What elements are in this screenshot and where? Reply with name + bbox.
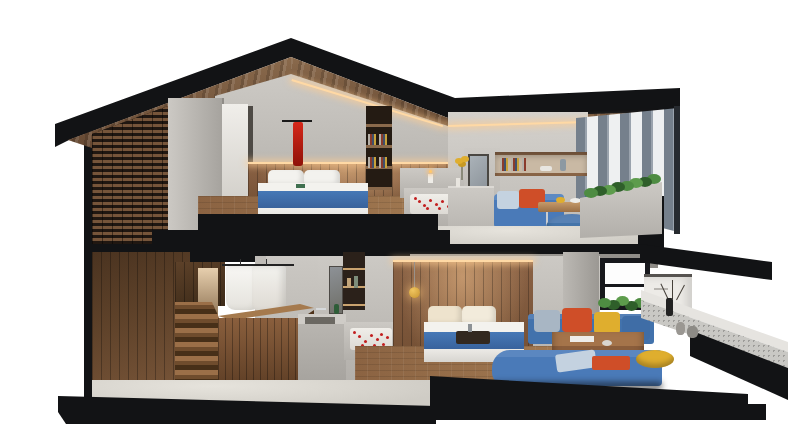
pendant-cord: [414, 262, 415, 288]
table-bowl: [602, 340, 612, 346]
books-row-upper: [368, 134, 390, 145]
tray-bottle: [468, 324, 472, 332]
table-white-dish: [570, 198, 581, 203]
hanger-hook-b: [266, 259, 267, 265]
bookshelf-niche: [366, 106, 392, 190]
shelf-dish: [540, 166, 552, 171]
breakfast-tray: [456, 331, 490, 344]
table-books: [570, 336, 594, 342]
vanity-faucet: [316, 308, 326, 310]
grey-vase-large: [687, 326, 698, 338]
wood-chest-front: [218, 318, 302, 386]
niche-bottle-a: [347, 278, 351, 288]
left-wall-cut-edge: [84, 130, 92, 422]
planter-plants: [584, 188, 598, 198]
branch-vase: [666, 298, 673, 316]
shelf-vase: [560, 159, 566, 171]
books-row-lower: [368, 157, 390, 168]
white-shirt-right: [252, 266, 286, 312]
upper-bed-blue-band: [258, 191, 368, 209]
yellow-pouf: [636, 350, 674, 368]
upper-tub-rose-petals: [414, 197, 417, 200]
cushion-yellow: [594, 312, 620, 334]
grey-vase-small: [676, 322, 685, 335]
window-mullion: [605, 284, 645, 287]
flower-stem: [461, 166, 463, 180]
hanger-hook-a: [240, 259, 241, 265]
green-bottle: [334, 304, 339, 314]
cushion-orange: [562, 308, 592, 332]
candle: [428, 174, 433, 183]
vanity-sink: [305, 317, 335, 324]
vanity-candle: [456, 178, 460, 187]
pendant-lamp: [409, 287, 420, 298]
branch-twig-b: [672, 280, 673, 299]
table-yellow-bowl: [556, 197, 565, 203]
lower-tub-rose-petals: [353, 331, 356, 334]
upper-sofa-pillow-lightblue: [497, 191, 519, 209]
niche-bottle-b: [354, 276, 358, 288]
louver-end-post: [674, 106, 680, 234]
shelf-books: [500, 158, 526, 171]
cushion-grey: [534, 310, 560, 332]
upper-bed-runner: [296, 184, 305, 188]
red-towel: [293, 122, 303, 166]
yellow-flowers: [455, 158, 463, 164]
throw-orange: [592, 356, 630, 370]
window-planter-plants: [598, 298, 611, 308]
upper-headboard-led: [248, 162, 448, 164]
candle-flame: [429, 170, 432, 173]
cabinet-handle: [654, 288, 668, 290]
house-cutaway-render: [0, 0, 800, 438]
